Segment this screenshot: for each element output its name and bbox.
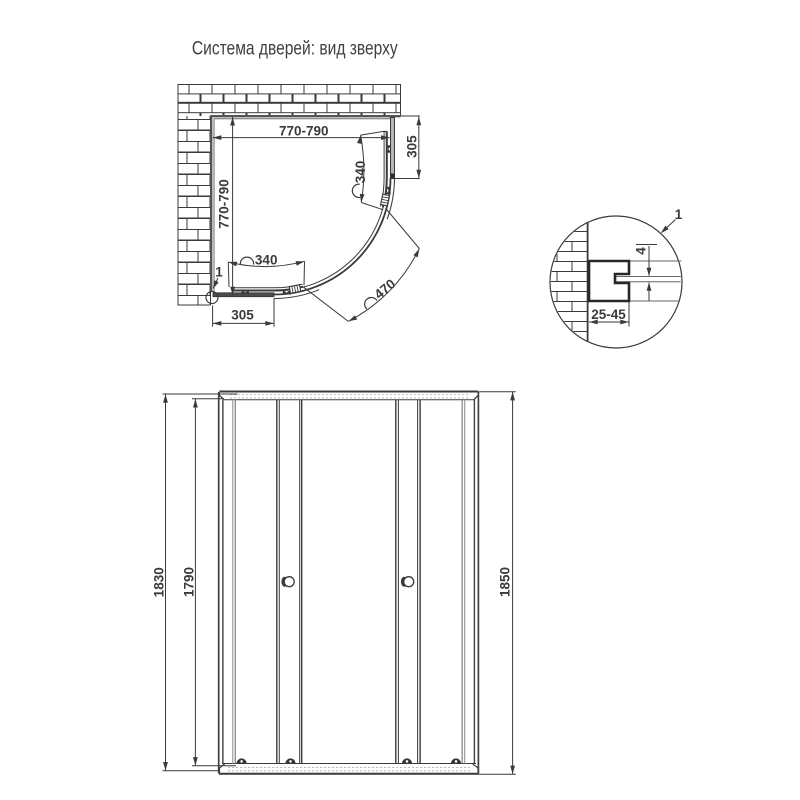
svg-text:770-790: 770-790 (217, 179, 232, 229)
svg-text:470: 470 (371, 276, 398, 302)
svg-text:305: 305 (405, 135, 420, 158)
svg-text:340: 340 (255, 253, 278, 268)
svg-text:1850: 1850 (498, 567, 513, 597)
svg-text:305: 305 (231, 308, 254, 323)
svg-text:4: 4 (633, 247, 648, 255)
svg-text:25-45: 25-45 (591, 307, 626, 322)
svg-text:340: 340 (353, 161, 368, 184)
svg-text:1: 1 (215, 265, 223, 280)
svg-text:1: 1 (675, 207, 683, 222)
svg-text:1790: 1790 (181, 567, 196, 597)
svg-text:770-790: 770-790 (279, 123, 329, 138)
svg-text:1830: 1830 (152, 567, 167, 597)
svg-text:Система дверей: вид зверху: Система дверей: вид зверху (192, 37, 398, 59)
